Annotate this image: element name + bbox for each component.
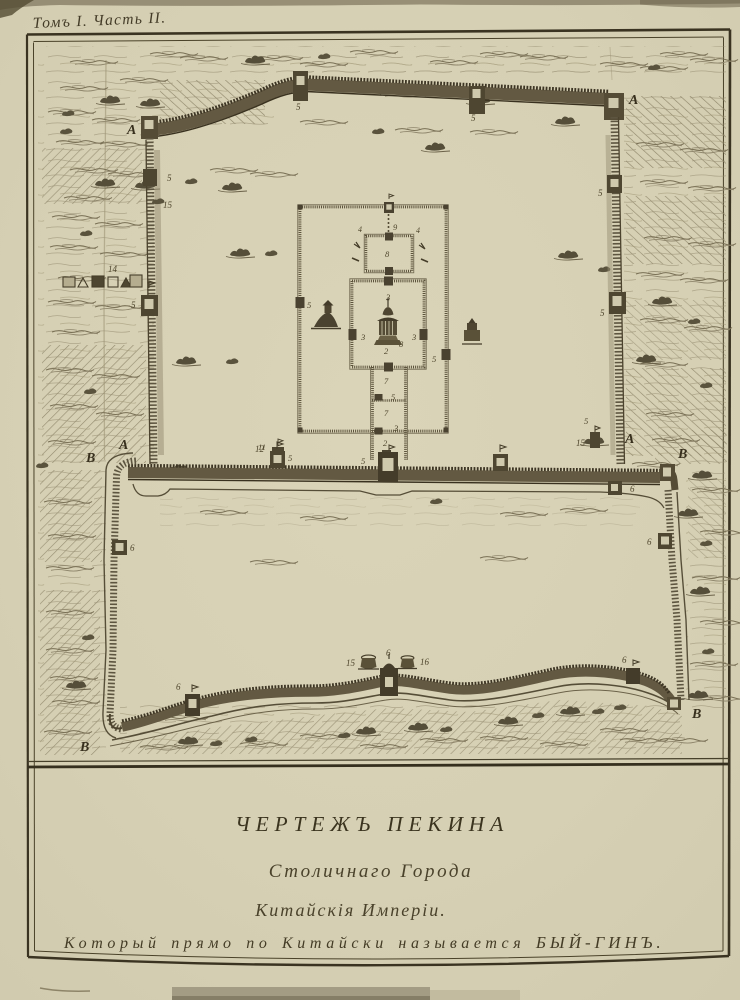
svg-text:15: 15	[163, 200, 173, 210]
svg-text:12: 12	[255, 444, 265, 454]
svg-text:5: 5	[600, 308, 605, 318]
svg-text:5: 5	[391, 392, 395, 402]
svg-text:6: 6	[622, 655, 627, 665]
svg-text:5: 5	[307, 300, 311, 310]
svg-text:B: B	[691, 707, 701, 722]
svg-text:15: 15	[346, 658, 356, 668]
svg-text:16: 16	[420, 657, 430, 667]
svg-text:5: 5	[432, 354, 436, 364]
svg-text:Который прямо по Китайски назы: Который прямо по Китайски называется БЫЙ…	[63, 933, 665, 952]
svg-text:B: B	[79, 740, 89, 755]
svg-text:A: A	[624, 432, 634, 447]
svg-text:ЧЕРТЕЖЪ ПЕКИНА: ЧЕРТЕЖЪ ПЕКИНА	[235, 812, 509, 836]
svg-text:6: 6	[630, 484, 635, 494]
svg-text:6: 6	[130, 543, 135, 553]
svg-text:5: 5	[361, 456, 365, 466]
svg-text:A: A	[118, 438, 128, 453]
svg-text:4: 4	[358, 225, 362, 234]
svg-text:5: 5	[598, 188, 603, 198]
svg-text:Китайскія Имперіи.: Китайскія Имперіи.	[254, 900, 446, 920]
svg-text:6: 6	[176, 682, 181, 692]
svg-text:5: 5	[584, 416, 588, 426]
svg-text:5: 5	[131, 300, 136, 310]
svg-text:B: B	[677, 447, 687, 462]
svg-text:A: A	[126, 123, 136, 138]
svg-text:5: 5	[471, 113, 476, 123]
svg-text:3: 3	[393, 423, 398, 433]
svg-text:14: 14	[108, 264, 118, 274]
svg-text:6: 6	[647, 537, 652, 547]
svg-text:5: 5	[296, 102, 301, 112]
svg-text:4: 4	[416, 226, 420, 235]
svg-text:5: 5	[167, 173, 172, 183]
svg-text:5: 5	[288, 453, 292, 463]
svg-text:6: 6	[386, 648, 391, 658]
svg-text:Столичнаго Города: Столичнаго Города	[269, 861, 474, 882]
svg-text:3: 3	[360, 332, 365, 342]
svg-text:15: 15	[576, 438, 586, 448]
svg-text:B: B	[85, 451, 95, 466]
svg-text:A: A	[628, 93, 638, 108]
svg-text:3: 3	[411, 332, 416, 342]
